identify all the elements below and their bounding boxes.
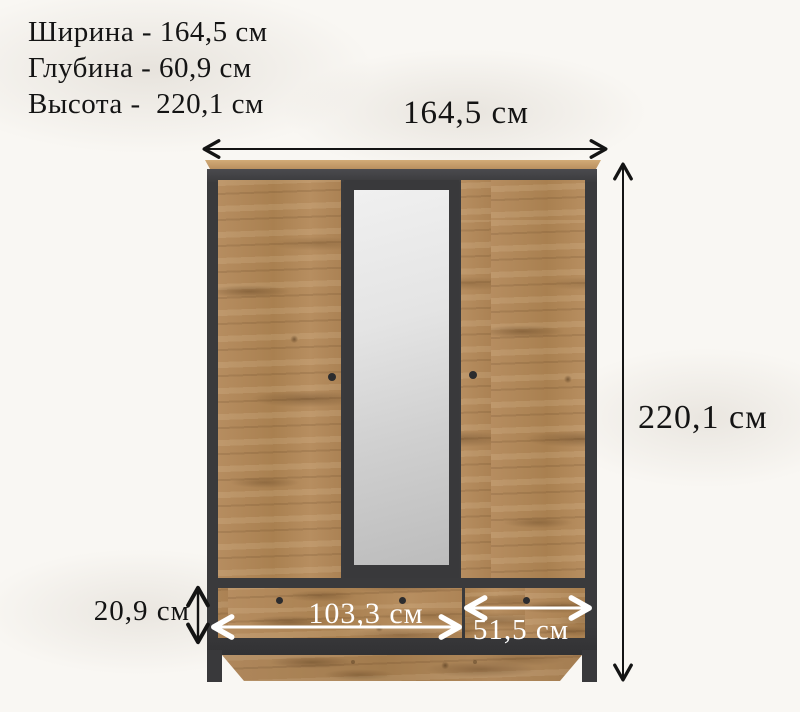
right-leg [582, 650, 597, 682]
spec-list: Ширина - 164,5 см Глубина - 60,9 см Высо… [28, 14, 268, 122]
spec-depth: Глубина - 60,9 см [28, 50, 268, 86]
skirt-dot [473, 660, 477, 664]
wide-drawer-width-label: 103,3 см [286, 597, 446, 631]
base-skirt [222, 655, 582, 681]
left-door-knob [328, 373, 336, 381]
spec-width: Ширина - 164,5 см [28, 14, 268, 50]
right-door-knob [469, 371, 477, 379]
spec-height: Высота - 220,1 см [28, 86, 268, 122]
wardrobe-right-door [461, 180, 585, 578]
narrow-drawer-width-label: 51,5 см [451, 614, 591, 647]
width-dimension-label: 164,5 см [403, 95, 529, 132]
furniture-dimension-diagram: Ширина - 164,5 см Глубина - 60,9 см Высо… [0, 0, 800, 712]
wardrobe-left-door [218, 180, 341, 578]
left-leg [207, 650, 222, 682]
skirt-dot [351, 660, 355, 664]
drawer-height-dimension-label: 20,9 см [80, 595, 190, 628]
narrow-drawer-knob [523, 597, 530, 604]
wardrobe-top-board [205, 160, 601, 169]
height-dimension-label: 220,1 см [638, 399, 768, 437]
wide-drawer-left-knob [276, 597, 283, 604]
mirror [354, 190, 449, 565]
